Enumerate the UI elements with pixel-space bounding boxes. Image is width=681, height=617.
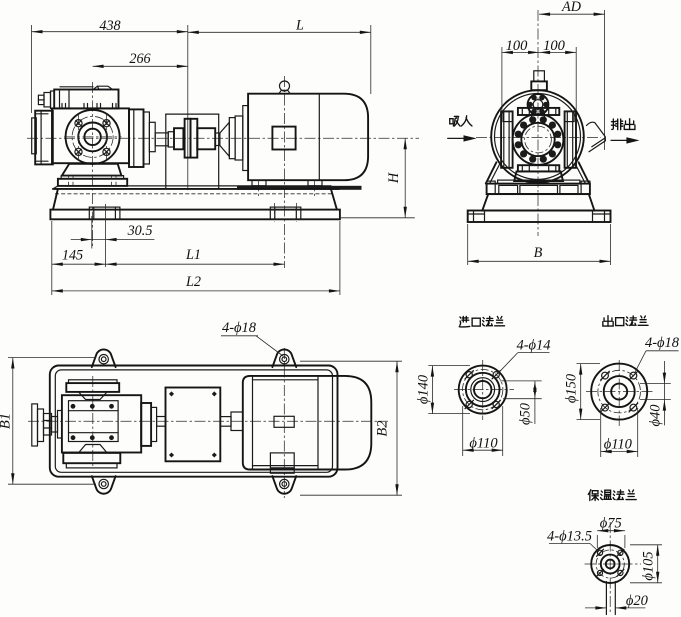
svg-text:100: 100 (543, 38, 566, 54)
svg-text:ϕ50: ϕ50 (518, 402, 534, 425)
svg-text:4-ϕ13.5: 4-ϕ13.5 (547, 529, 592, 545)
svg-text:145: 145 (62, 248, 83, 264)
svg-text:ϕ40: ϕ40 (648, 404, 664, 427)
svg-text:ϕ20: ϕ20 (626, 593, 649, 609)
svg-text:H: H (386, 172, 402, 184)
svg-text:30.5: 30.5 (127, 223, 153, 239)
svg-text:100: 100 (506, 38, 529, 54)
svg-text:L: L (295, 18, 304, 34)
svg-text:B: B (534, 245, 543, 261)
svg-text:ϕ150: ϕ150 (564, 373, 580, 403)
svg-text:4-ϕ18: 4-ϕ18 (222, 320, 257, 336)
svg-text:4-ϕ18: 4-ϕ18 (645, 335, 680, 351)
svg-text:AD: AD (561, 0, 582, 15)
svg-text:L2: L2 (185, 274, 201, 290)
svg-text:ϕ110: ϕ110 (469, 436, 498, 452)
svg-text:L1: L1 (185, 247, 201, 263)
svg-text:ϕ105: ϕ105 (641, 551, 657, 580)
svg-text:B2: B2 (375, 420, 391, 436)
svg-text:ϕ75: ϕ75 (600, 516, 622, 532)
svg-text:4-ϕ14: 4-ϕ14 (516, 338, 550, 354)
svg-text:B1: B1 (0, 413, 14, 429)
svg-text:ϕ110: ϕ110 (604, 437, 633, 453)
svg-text:266: 266 (129, 51, 151, 67)
svg-text:438: 438 (99, 18, 120, 34)
svg-text:ϕ140: ϕ140 (416, 374, 432, 404)
